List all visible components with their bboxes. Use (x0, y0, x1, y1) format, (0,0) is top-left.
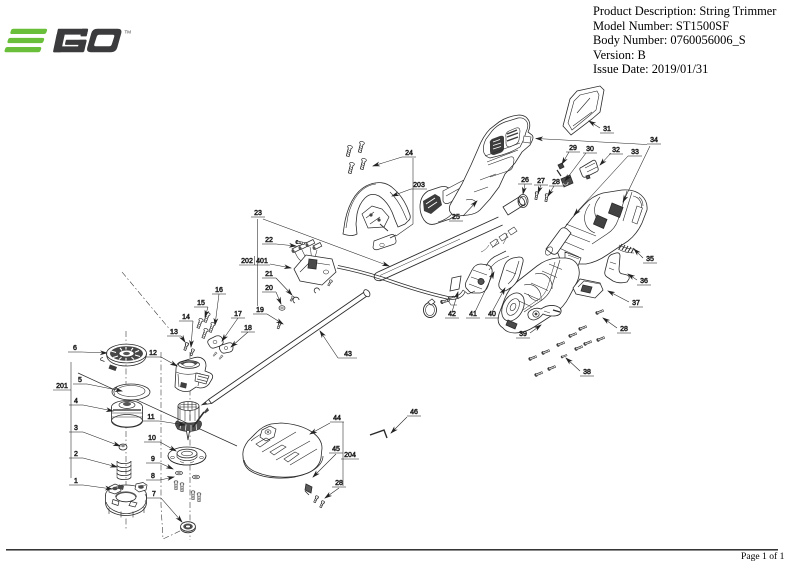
svg-text:36: 36 (640, 278, 648, 285)
svg-text:3: 3 (74, 425, 78, 432)
svg-text:204: 204 (344, 452, 356, 459)
svg-text:6: 6 (73, 345, 77, 352)
svg-text:37: 37 (632, 300, 640, 307)
svg-text:34: 34 (650, 137, 658, 144)
svg-text:5: 5 (78, 377, 82, 384)
svg-text:11: 11 (147, 414, 154, 421)
svg-text:38: 38 (583, 369, 591, 376)
svg-text:19: 19 (256, 307, 264, 314)
svg-text:43: 43 (344, 351, 352, 358)
svg-text:44: 44 (333, 415, 341, 422)
svg-text:4: 4 (74, 398, 78, 405)
svg-text:12: 12 (149, 350, 157, 357)
svg-text:202: 202 (241, 258, 253, 265)
svg-text:16: 16 (215, 287, 223, 294)
svg-text:32: 32 (612, 147, 620, 154)
svg-text:TM: TM (125, 30, 132, 35)
svg-text:42: 42 (448, 311, 456, 318)
svg-text:30: 30 (586, 146, 594, 153)
svg-text:27: 27 (537, 178, 545, 185)
svg-text:26: 26 (521, 177, 529, 184)
svg-text:2: 2 (74, 451, 78, 458)
svg-text:20: 20 (265, 285, 273, 292)
svg-text:33: 33 (631, 149, 639, 156)
svg-text:40: 40 (488, 311, 496, 318)
svg-text:25: 25 (452, 214, 460, 221)
svg-text:23: 23 (254, 210, 262, 217)
svg-text:28: 28 (552, 179, 560, 186)
svg-text:29: 29 (569, 145, 577, 152)
svg-text:18: 18 (244, 325, 252, 332)
svg-text:10: 10 (148, 435, 156, 442)
svg-text:8: 8 (151, 473, 155, 480)
svg-text:39: 39 (519, 331, 527, 338)
svg-text:28: 28 (335, 480, 343, 487)
svg-text:201: 201 (56, 383, 68, 390)
svg-text:7: 7 (152, 491, 156, 498)
svg-text:15: 15 (197, 300, 205, 307)
svg-text:45: 45 (332, 446, 340, 453)
svg-text:401: 401 (256, 258, 268, 265)
svg-text:41: 41 (469, 311, 477, 318)
svg-text:28: 28 (620, 326, 628, 333)
svg-text:21: 21 (265, 271, 273, 278)
svg-text:46: 46 (410, 409, 418, 416)
svg-text:35: 35 (646, 256, 654, 263)
svg-text:17: 17 (234, 311, 242, 318)
svg-text:13: 13 (170, 329, 178, 336)
svg-text:203: 203 (413, 182, 425, 189)
svg-text:14: 14 (182, 314, 190, 321)
svg-text:22: 22 (265, 237, 273, 244)
svg-text:1: 1 (74, 478, 78, 485)
svg-text:9: 9 (151, 456, 155, 463)
svg-text:31: 31 (603, 126, 611, 133)
svg-text:24: 24 (405, 150, 413, 157)
